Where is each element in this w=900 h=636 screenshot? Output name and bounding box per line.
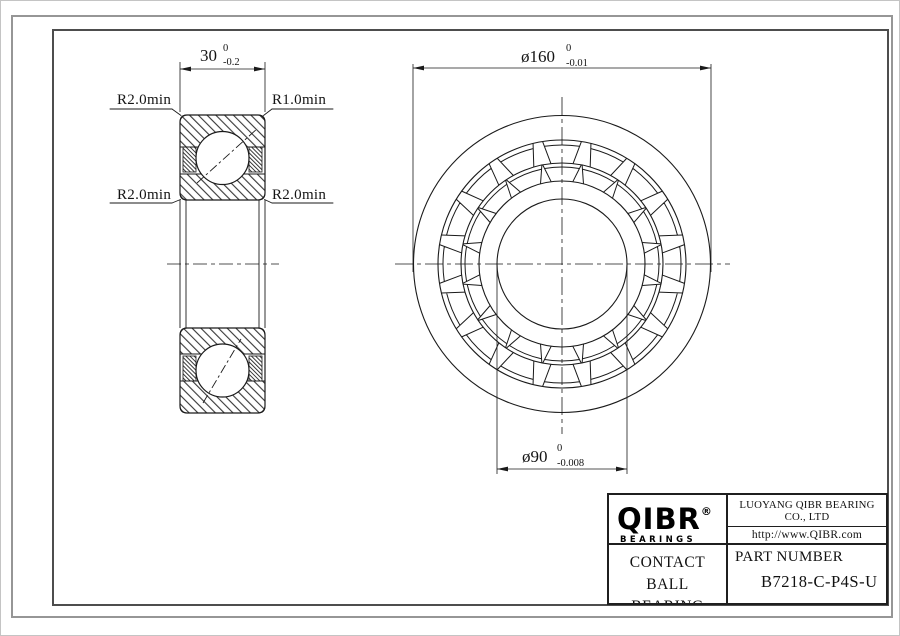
cage-right-bottom (249, 356, 262, 381)
od-dim-value: ø160 (521, 47, 555, 66)
width-dimension: 30 0 -0.2 (180, 43, 265, 112)
company-cell: LUOYANG QIBR BEARING CO., LTD http://www… (728, 495, 886, 545)
cage-left-bottom (183, 356, 196, 381)
od-dim-tol-upper: 0 (566, 43, 571, 54)
part-cell: PART NUMBER B7218-C-P4S-U (728, 545, 886, 603)
width-dim-value: 30 (200, 46, 217, 65)
brand-logo-text: QIBR (617, 502, 701, 536)
drawing-sheet: 30 0 -0.2 R2.0min R1.0min R2.0min R2.0mi… (0, 0, 900, 636)
cage-left-top (183, 147, 196, 172)
bore-dim-value: ø90 (522, 447, 548, 466)
product-name-line2: BALL BEARING (609, 574, 726, 603)
product-cell: ANGULAR CONTACT BALL BEARING (609, 545, 728, 603)
bore-dim-tol-upper: 0 (557, 443, 562, 454)
company-url: http://www.QIBR.com (728, 527, 886, 543)
fillet-label-top-right: R1.0min (272, 92, 326, 108)
ball-top (196, 132, 249, 185)
product-name-line1: ANGULAR CONTACT (609, 545, 726, 574)
bore-dim-tol-lower: -0.008 (557, 458, 584, 469)
brand-cell: QIBR® BEARINGS (609, 495, 728, 545)
width-dim-tol-lower: -0.2 (223, 57, 240, 68)
section-view (167, 115, 279, 413)
fillet-label-mid-right: R2.0min (272, 187, 326, 203)
front-view (395, 97, 730, 434)
title-block: QIBR® BEARINGS LUOYANG QIBR BEARING CO.,… (607, 493, 888, 605)
width-dim-tol-upper: 0 (223, 43, 228, 54)
brand-tagline: BEARINGS (620, 535, 726, 545)
fillet-label-top-left: R2.0min (117, 92, 171, 108)
part-number-label: PART NUMBER (735, 549, 882, 566)
cage-right-top (249, 147, 262, 172)
registered-mark: ® (701, 505, 712, 518)
od-dim-tol-lower: -0.01 (566, 58, 588, 69)
fillet-label-mid-left: R2.0min (117, 187, 171, 203)
company-name: LUOYANG QIBR BEARING CO., LTD (728, 495, 886, 527)
brand-logo: QIBR® (617, 497, 726, 534)
part-number-value: B7218-C-P4S-U (761, 572, 882, 592)
